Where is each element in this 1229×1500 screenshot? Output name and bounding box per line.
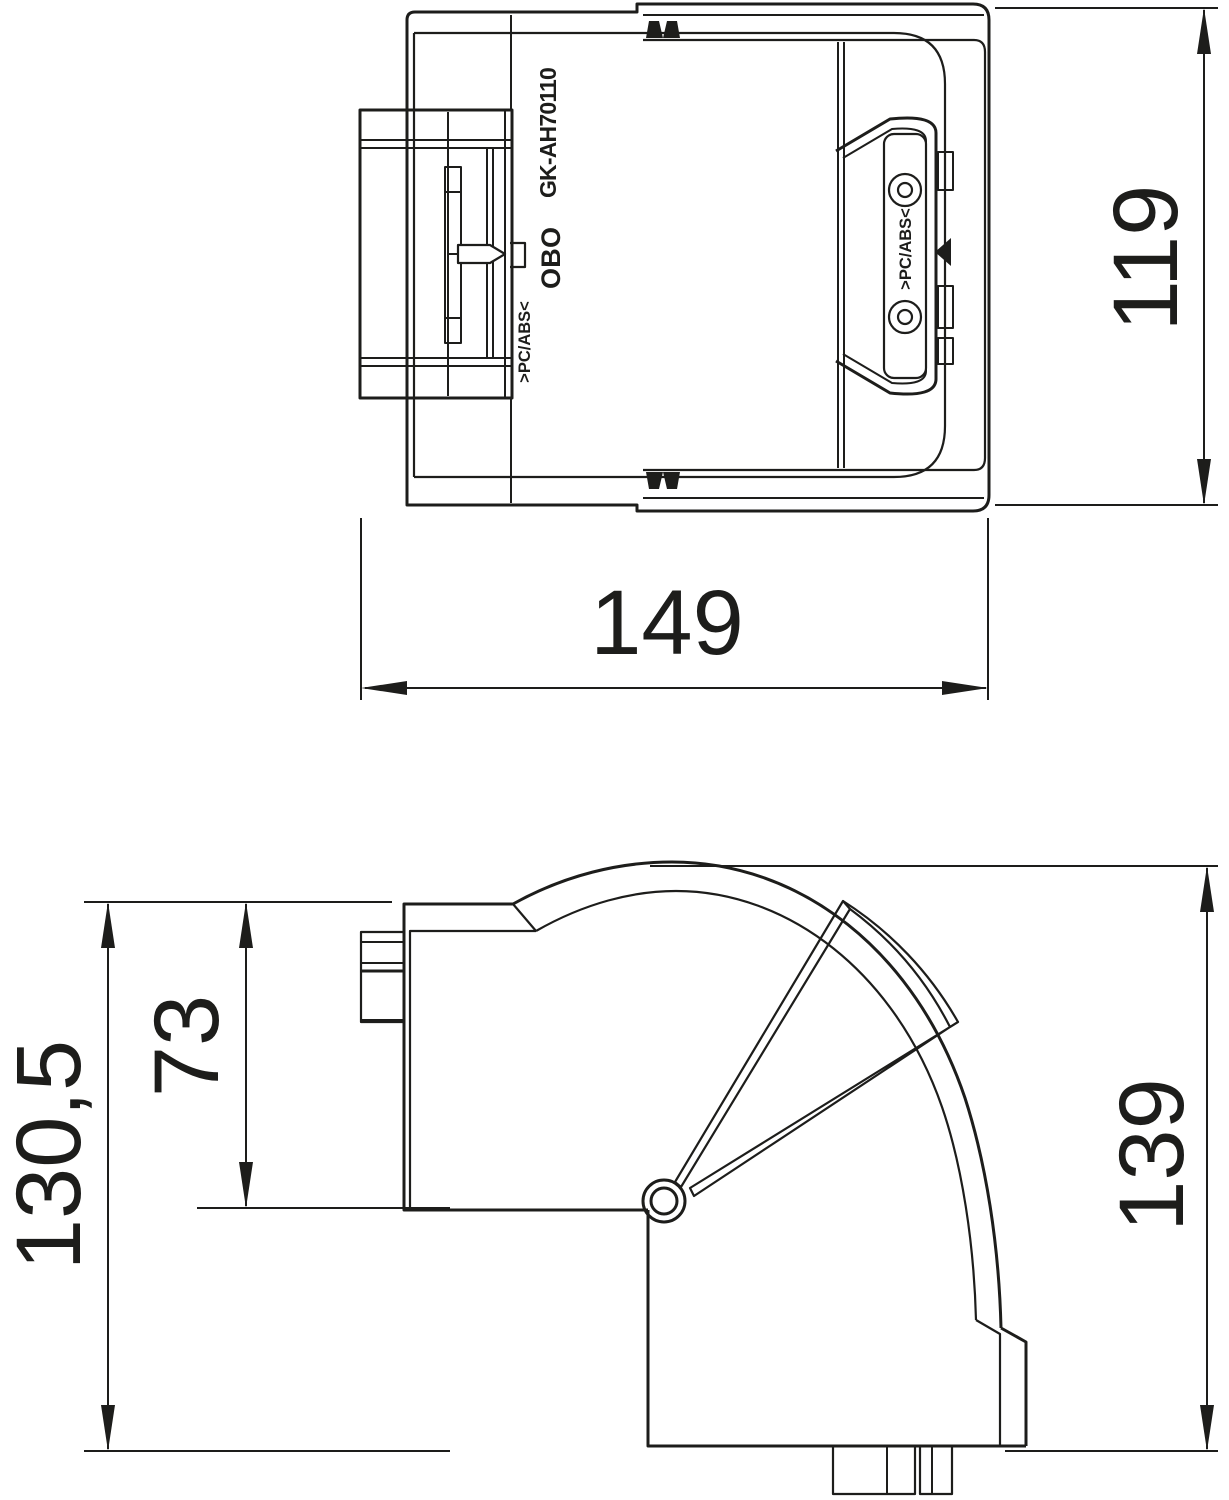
top-view: GK-AH70110 OBO >PC/ABS< >PC/ABS<	[360, 4, 989, 511]
bend-inner-chamfer	[976, 1320, 1000, 1446]
material-marking-left: >PC/ABS<	[516, 301, 534, 383]
dim-119-arrow-up	[1197, 8, 1211, 54]
hduct-lid-chamfer	[513, 904, 536, 931]
dim-139-arrow-down	[1200, 1405, 1214, 1451]
bracket-banner-outer	[836, 118, 936, 394]
dim-119-arrow-down	[1197, 459, 1211, 505]
drawing-page: GK-AH70110 OBO >PC/ABS< >PC/ABS< 119	[0, 0, 1229, 1500]
dimension-119: 119	[995, 8, 1218, 505]
dim-149-arrow-left	[361, 681, 407, 695]
dim-73-arrow-up	[239, 902, 253, 948]
dim-73-label: 73	[136, 995, 238, 1097]
dim-139-label: 139	[1101, 1078, 1203, 1232]
dim-119-label: 119	[1095, 185, 1197, 332]
latch-arrow	[458, 245, 505, 263]
bend-outer-chamfer	[1001, 1328, 1026, 1446]
product-code-label: GK-AH70110	[535, 68, 561, 198]
screw-hole-bottom-outer	[889, 301, 921, 333]
connector-block-bottom-walls	[360, 358, 512, 366]
vduct-outline	[648, 1210, 1026, 1446]
dim-149-arrow-right	[942, 681, 988, 695]
cover-band-boundary	[643, 40, 985, 470]
dim-73-arrow-down	[239, 1162, 253, 1208]
dim-130-5-arrow-up	[101, 902, 115, 948]
dim-130-5-arrow-down	[101, 1405, 115, 1451]
dimension-130-5: 130,5	[0, 902, 450, 1451]
coupling-tab-outline	[361, 932, 404, 1022]
technical-drawing-canvas: GK-AH70110 OBO >PC/ABS< >PC/ABS< 119	[0, 0, 1229, 1500]
face-markings: GK-AH70110 OBO >PC/ABS<	[510, 68, 566, 383]
dim-130-5-extension-lines	[84, 902, 450, 1451]
side-view	[361, 862, 1026, 1494]
mounting-bracket: >PC/ABS<	[836, 118, 953, 394]
bottom-tab-wide	[833, 1446, 915, 1494]
coupling-tab-lines	[361, 942, 404, 1020]
hinge-pin	[651, 1188, 677, 1214]
hduct-coupling-tabs	[361, 932, 404, 1022]
fan-outer-arc	[843, 901, 958, 1022]
obo-logo: OBO	[536, 227, 566, 289]
left-connector-block	[360, 110, 512, 398]
connector-block-top-walls	[360, 140, 512, 148]
fan-inner-arc	[850, 909, 950, 1027]
dim-130-5-label: 130,5	[0, 1040, 100, 1270]
vduct-coupling-tabs	[833, 1446, 952, 1494]
hduct-lid-inner-line	[410, 931, 536, 1208]
fan-vane-lower	[690, 1022, 958, 1196]
dim-139-arrow-up	[1200, 866, 1214, 912]
cover-clip-bottom	[646, 472, 680, 489]
material-marking-right: >PC/ABS<	[897, 208, 915, 290]
dim-149-label: 149	[590, 572, 744, 674]
hduct-outline	[404, 904, 648, 1210]
bottom-tab-narrow	[920, 1446, 952, 1494]
screw-hole-top-inner	[898, 183, 912, 197]
screw-hole-bottom-inner	[898, 310, 912, 324]
dimension-149: 149	[361, 518, 988, 700]
bend-outer-arc	[513, 862, 1001, 1328]
screw-hole-top-outer	[889, 174, 921, 206]
dimension-139: 139	[650, 866, 1218, 1451]
cover-clip-top	[646, 21, 680, 38]
